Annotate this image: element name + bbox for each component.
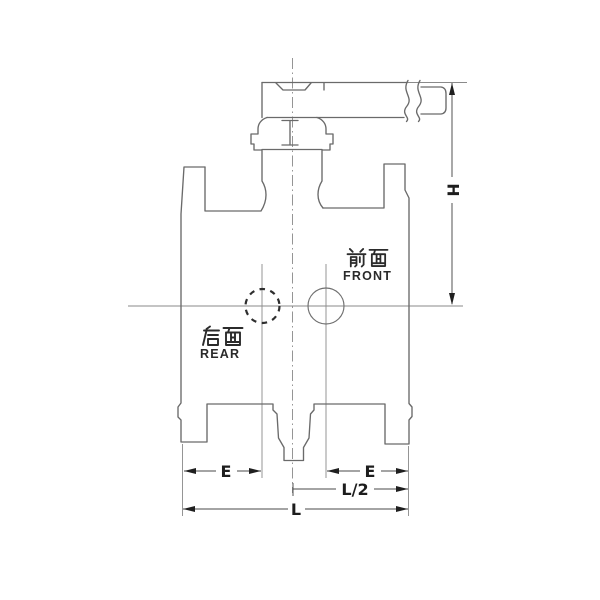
dim-e-left-arrow-in (249, 468, 261, 474)
stem-center-mark (282, 121, 298, 146)
dim-l-arrow-left (183, 506, 195, 512)
body-silhouette (178, 164, 412, 461)
rear-label: 后面 REAR (200, 326, 243, 361)
front-en-text: FRONT (343, 269, 392, 283)
dim-l-half-arrow (396, 486, 408, 492)
dim-l-label: L (291, 500, 301, 519)
dim-e-right-label: E (365, 462, 376, 481)
left-wing-and-neck (205, 118, 267, 212)
handle-grip-plate (276, 83, 311, 90)
dim-e-right-arrow-in (327, 468, 339, 474)
dim-e-right: E (327, 461, 408, 481)
dim-l-arrow-right (396, 506, 408, 512)
dim-h: H (443, 83, 463, 305)
handle-end-cap (421, 87, 446, 114)
dim-e-right-arrow-out (396, 468, 408, 474)
valve-dimension-drawing: H E E L/2 L (0, 0, 600, 600)
front-label: 前面 FRONT (343, 248, 392, 283)
dim-h-arrow-bottom (449, 293, 455, 305)
centerlines (128, 58, 463, 493)
drawing-canvas: H E E L/2 L (0, 0, 600, 600)
dim-e-left-arrow-out (184, 468, 196, 474)
dim-e-left-label: E (221, 462, 232, 481)
dim-l: L (183, 499, 408, 519)
dim-h-label: H (444, 183, 463, 196)
rear-en-text: REAR (200, 347, 240, 361)
dim-h-arrow-top (449, 83, 455, 95)
dim-l-half: L/2 (293, 479, 408, 499)
dim-e-left: E (184, 461, 261, 481)
right-neck (317, 118, 333, 209)
break-line-icon (405, 81, 422, 122)
valve-body-outline (178, 118, 412, 461)
dim-l-half-label: L/2 (341, 480, 368, 499)
